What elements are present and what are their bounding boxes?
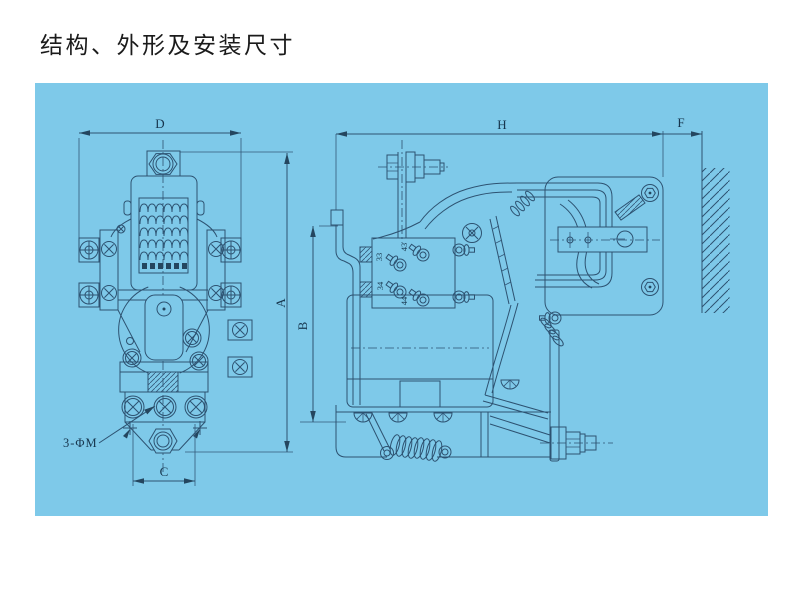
terminal-strip-grid (140, 204, 188, 269)
moving-contact-arm (483, 216, 565, 419)
lower-mount-bolt (540, 427, 613, 459)
top-stud-bolt (378, 140, 448, 243)
base-assembly (336, 330, 613, 462)
terminal-label-33: 33 (374, 253, 384, 262)
front-bracket (331, 210, 360, 405)
dim-label-B: B (295, 321, 310, 330)
dimension-F: F (663, 115, 702, 137)
terminal-label-44: 44 (399, 296, 409, 305)
dim-label-H: H (497, 117, 506, 132)
terminal-label-34: 34 (375, 281, 385, 290)
blueprint-drawing: D A (35, 83, 768, 516)
slide: 结构、外形及安装尺寸 (0, 0, 800, 600)
bottom-terminals (122, 392, 207, 453)
aux-contact-block: 43 33 34 44 (360, 238, 475, 308)
mounting-note-label: 3-ΦM (63, 436, 98, 450)
contact-spring (539, 316, 565, 347)
figure-panel: D A (35, 83, 768, 516)
coil-body (111, 176, 217, 300)
mounting-note: 3-ΦM (63, 406, 155, 450)
dim-label-A: A (273, 298, 288, 308)
dimension-B: B (295, 226, 346, 422)
magnet-body (347, 295, 493, 407)
terminal-label-43: 43 (399, 243, 409, 252)
dimension-H: H (336, 117, 663, 210)
dim-label-D: D (155, 116, 164, 131)
mounting-wall (702, 131, 730, 313)
aux-side-contacts (228, 320, 252, 377)
side-view: H F B (295, 115, 768, 462)
dimension-D: D (79, 116, 241, 243)
dim-label-F: F (677, 115, 684, 130)
dim-label-C: C (160, 464, 169, 479)
wall-hatching (703, 168, 730, 313)
arc-runner (615, 195, 645, 220)
kickout-spring-top (509, 190, 536, 217)
page-title: 结构、外形及安装尺寸 (40, 26, 295, 60)
top-hex-nut (147, 151, 180, 176)
bottom-hex-nut (149, 429, 177, 453)
front-view: D A (63, 116, 293, 486)
